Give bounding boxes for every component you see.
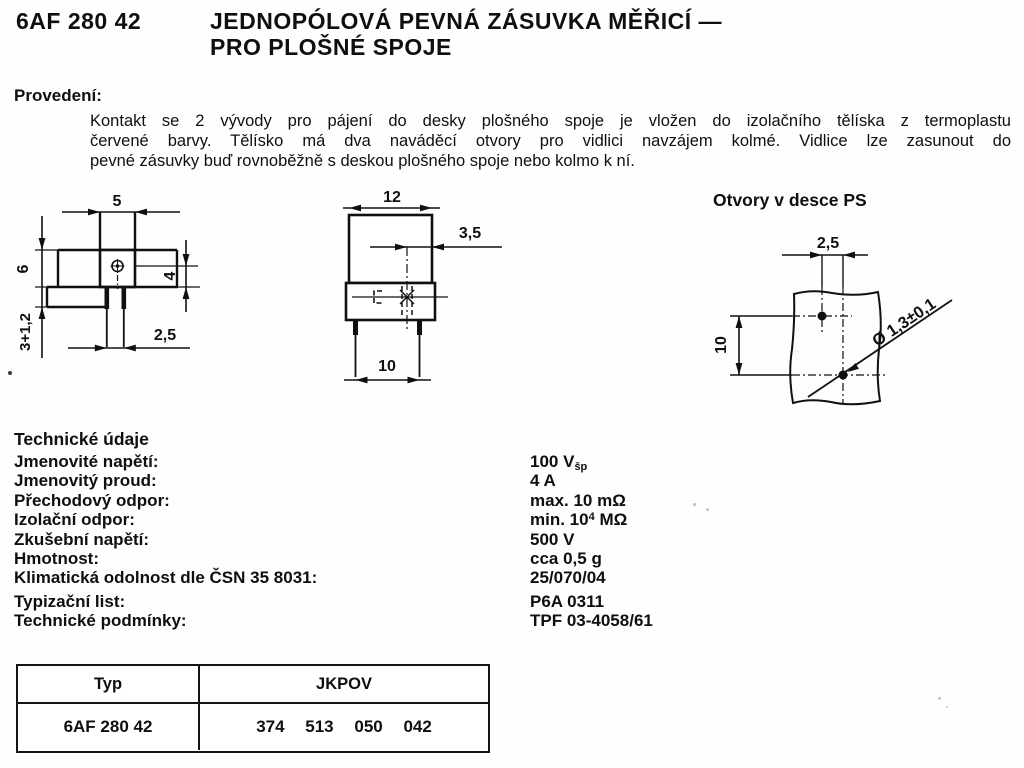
tech-row: Jmenovité napětí:100 Všp — [14, 452, 1004, 471]
tech-label: Zkušební napětí: — [14, 530, 149, 549]
scan-speckle — [693, 503, 696, 506]
drawing-pcb-holes: 2,5 10 Ø 1,3±0,1 — [680, 185, 1024, 420]
pcb-hole-1 — [818, 312, 827, 321]
tech-value: 500 V — [530, 530, 574, 550]
tech-rows: Jmenovité napětí:100 VšpJmenovitý proud:… — [14, 452, 1004, 631]
tech-label: Typizační list: — [14, 592, 125, 611]
scan-speckle — [706, 508, 709, 511]
tech-value: 4 A — [530, 471, 556, 491]
tech-label: Přechodový odpor: — [14, 491, 170, 510]
dim-side-center-to-edge: 3,5 — [459, 225, 481, 242]
tech-row: Izolační odpor:min. 104 MΩ — [14, 510, 1004, 529]
tech-row: Technické podmínky:TPF 03-4058/61 — [14, 611, 1004, 630]
tech-row: Hmotnost:cca 0,5 g — [14, 549, 1004, 568]
tech-label: Jmenovité napětí: — [14, 452, 159, 471]
tech-label: Hmotnost: — [14, 549, 99, 568]
tech-value: cca 0,5 g — [530, 549, 602, 569]
dim-front-pin-spacing: 2,5 — [154, 327, 176, 344]
dim-front-hole-offset: 4 — [162, 271, 179, 280]
tech-value: P6A 0311 — [530, 592, 604, 612]
page-title-line2: PRO PLOŠNÉ SPOJE — [210, 34, 452, 61]
jkpov-value: 374 513 050 042 — [200, 704, 488, 750]
table-row: 6AF 280 42 374 513 050 042 — [18, 704, 488, 750]
tech-value: 25/070/04 — [530, 568, 606, 588]
tech-label: Izolační odpor: — [14, 510, 135, 529]
dim-front-height: 6 — [15, 264, 32, 273]
scan-speckle — [8, 371, 12, 375]
tech-row: Klimatická odolnost dle ČSN 35 8031:25/0… — [14, 568, 1004, 587]
dim-front-pin-length: 3+1,2 — [17, 313, 34, 351]
typ-value: 6AF 280 42 — [18, 704, 200, 750]
description-line: Kontakt se 2 vývody pro pájení do desky … — [90, 111, 1011, 131]
dim-pcb-hole-spacing-x: 2,5 — [817, 235, 839, 252]
pcb-hole-2 — [839, 371, 848, 380]
dim-side-pin-spacing: 10 — [378, 358, 396, 375]
pcb-board-outline — [790, 291, 881, 404]
dim-pcb-hole-spacing-y: 10 — [713, 336, 730, 354]
section-heading-provedeni: Provedení: — [14, 86, 102, 106]
scan-speckle — [946, 706, 948, 708]
pcb-lines — [730, 255, 952, 404]
tech-row: Jmenovitý proud:4 A — [14, 471, 1004, 490]
dim-front-width: 5 — [113, 193, 122, 210]
description-line: červené barvy. Tělísko má dva naváděcí o… — [90, 131, 1011, 151]
part-number: 6AF 280 42 — [16, 8, 141, 35]
tech-value: min. 104 MΩ — [530, 510, 627, 530]
drawing-side-view: 12 3,5 10 — [330, 185, 520, 390]
description-paragraph: Kontakt se 2 vývody pro pájení do desky … — [90, 111, 1011, 171]
section-heading-tech: Technické údaje — [14, 429, 149, 450]
scanned-datasheet-page: { "header": { "code": "6AF 280 42", "tit… — [0, 0, 1024, 768]
dim-side-width: 12 — [383, 189, 401, 206]
table-header-jkpov: JKPOV — [200, 666, 488, 702]
scan-speckle — [938, 697, 941, 700]
type-jkpov-table: Typ JKPOV 6AF 280 42 374 513 050 042 — [16, 664, 490, 753]
tech-row: Typizační list:P6A 0311 — [14, 592, 1004, 611]
table-header-typ: Typ — [18, 666, 200, 702]
tech-row: Zkušební napětí:500 V — [14, 530, 1004, 549]
tech-label: Technické podmínky: — [14, 611, 187, 630]
tech-value: max. 10 mΩ — [530, 491, 626, 511]
table-header-row: Typ JKPOV — [18, 666, 488, 704]
tech-label: Jmenovitý proud: — [14, 471, 157, 490]
tech-value: TPF 03-4058/61 — [530, 611, 653, 631]
page-title-line1: JEDNOPÓLOVÁ PEVNÁ ZÁSUVKA MĚŘICÍ — — [210, 8, 722, 35]
tech-label: Klimatická odolnost dle ČSN 35 8031: — [14, 568, 317, 587]
tech-value: 100 Všp — [530, 452, 587, 473]
drawing-front-view: 5 2,5 4 6 3+1,2 — [0, 190, 230, 375]
tech-row: Přechodový odpor:max. 10 mΩ — [14, 491, 1004, 510]
description-line: pevné zásuvky buď rovnoběžně s deskou pl… — [90, 151, 1011, 171]
